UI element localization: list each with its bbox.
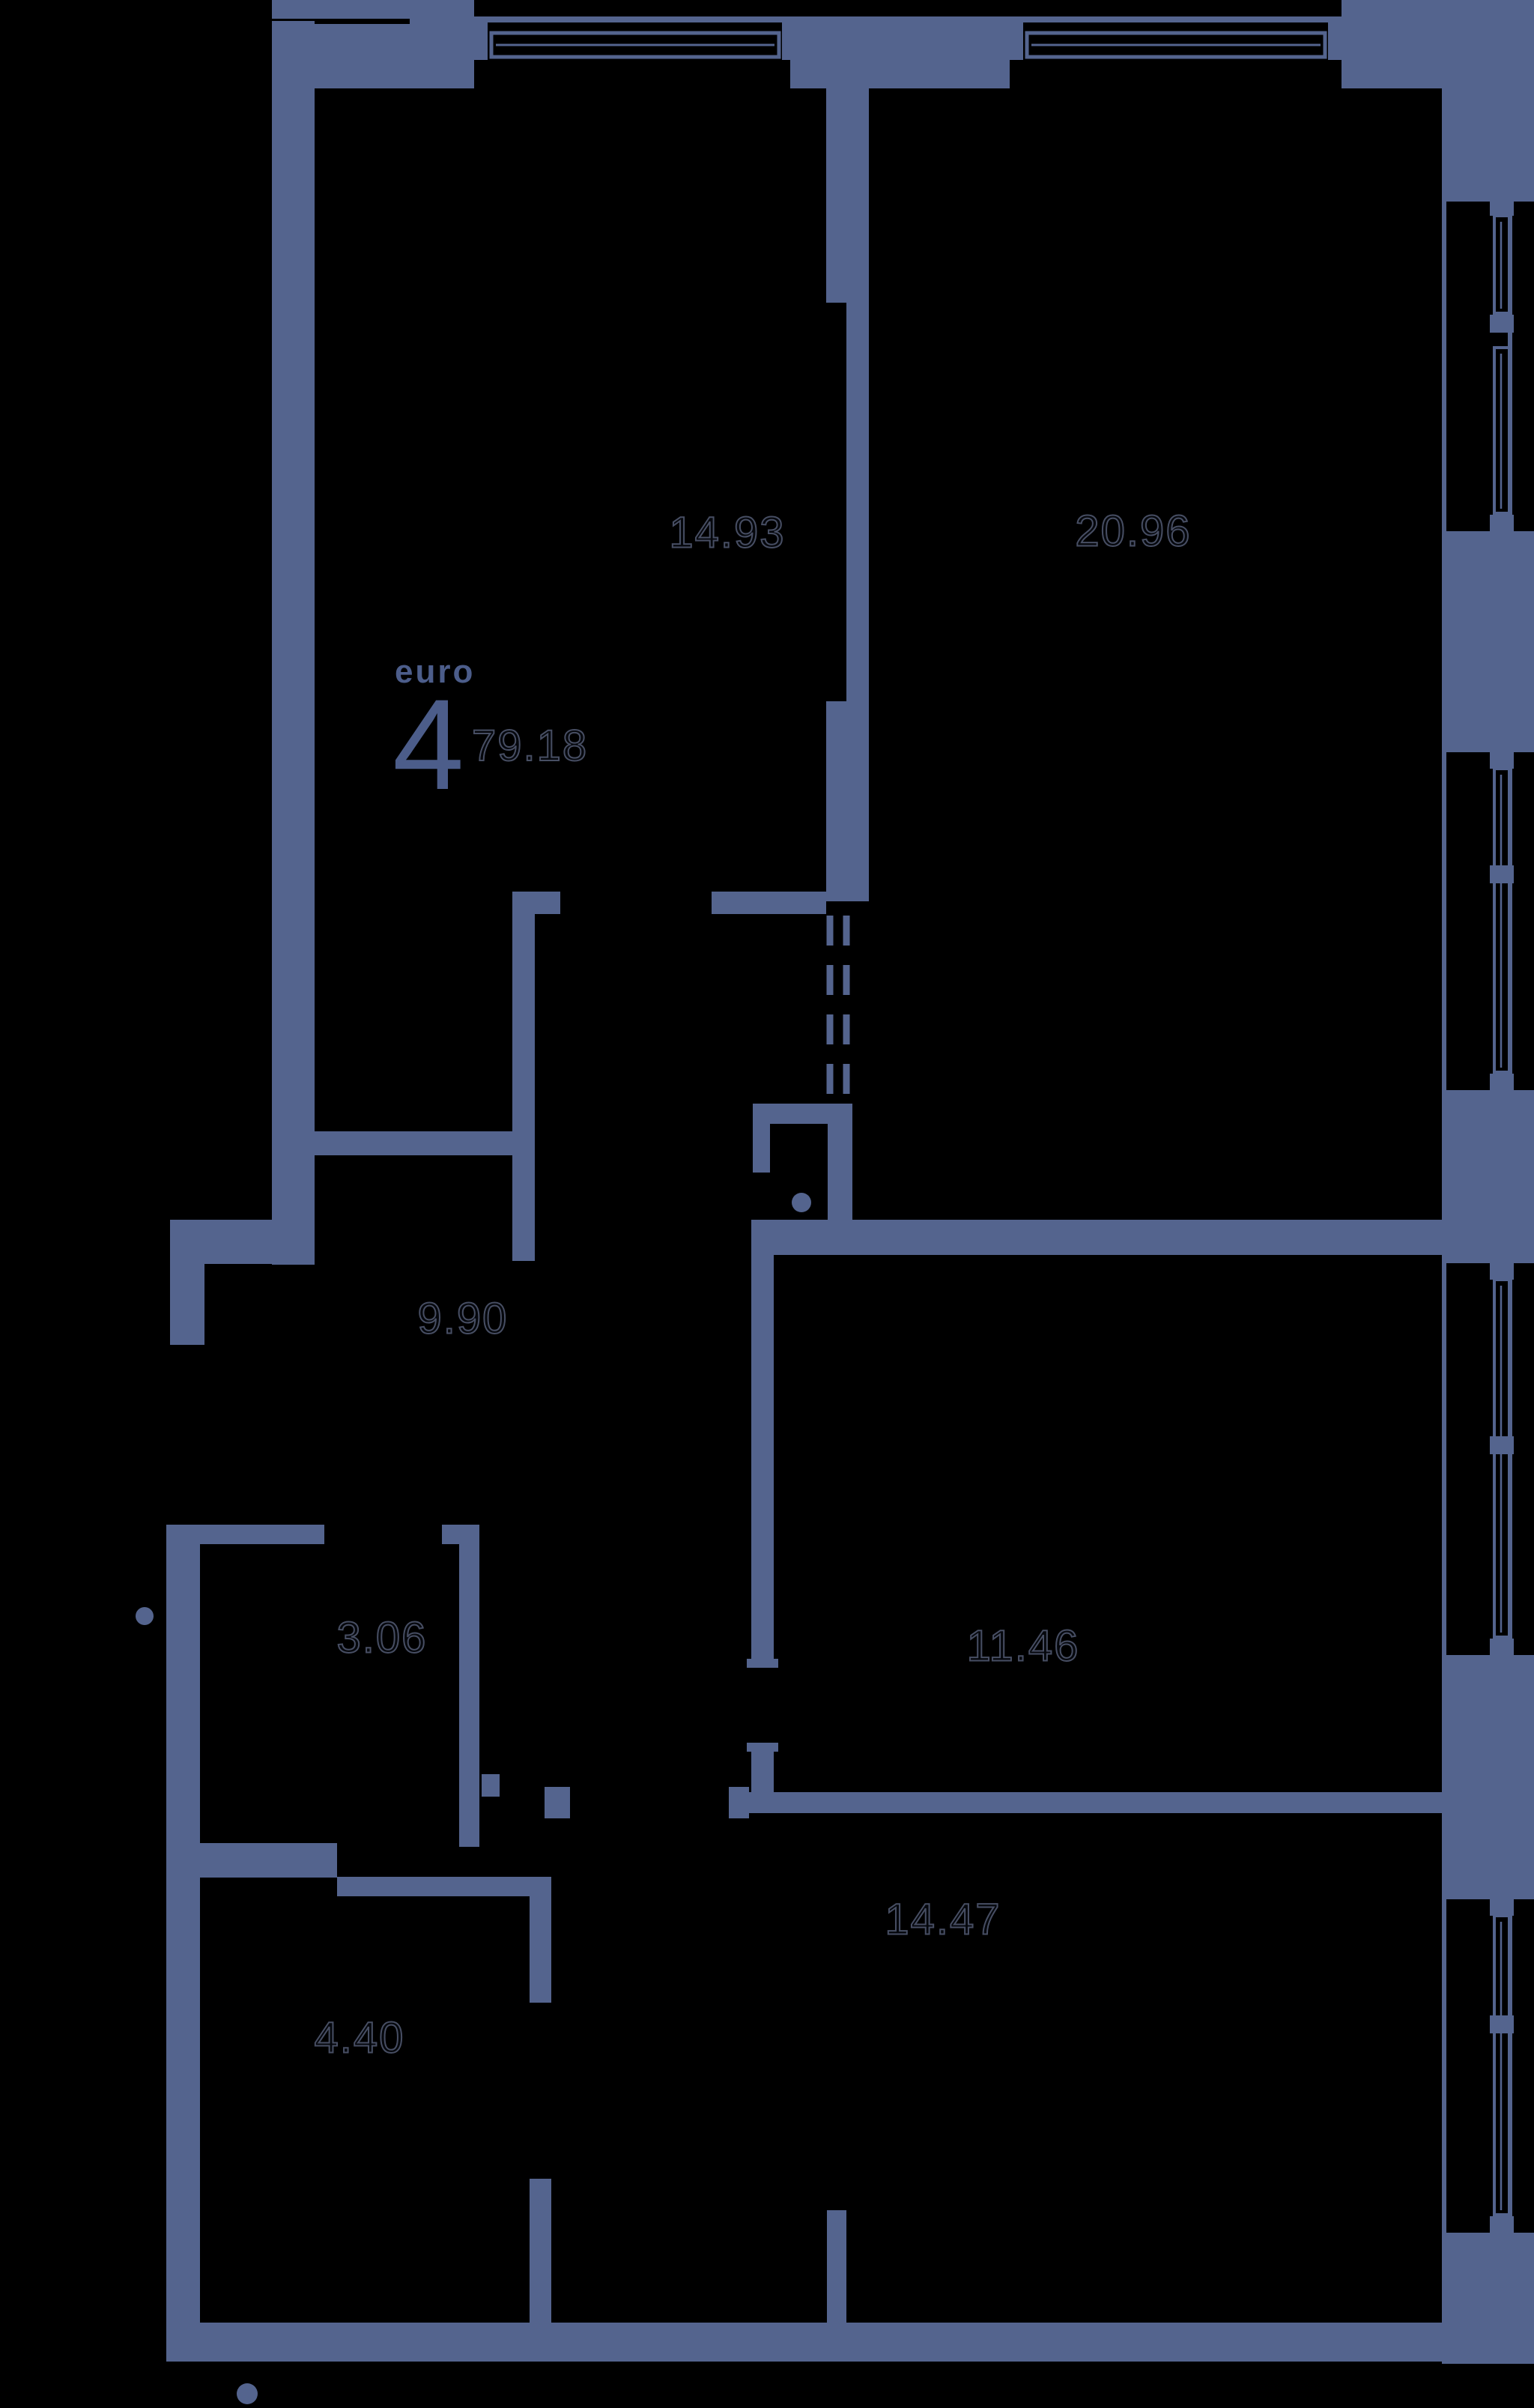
interior-walls (200, 16, 1443, 2324)
bottom-wall-dot (237, 2383, 258, 2404)
floor-plan: euro 4 79.18 14.93 20.96 9.90 3.06 11.46… (0, 0, 1534, 2408)
window-top-kitchen (474, 22, 795, 60)
room-label-bedroom-2: 14.47 (885, 1895, 1001, 1945)
unit-total-area: 79.18 (472, 721, 588, 771)
room-label-living-room: 20.96 (1075, 506, 1191, 557)
unit-rooms-count: 4 (392, 680, 464, 809)
room-label-bedroom-1: 11.46 (967, 1621, 1080, 1672)
shaft-riser-dot (792, 1193, 811, 1212)
room-label-bathroom-2: 4.40 (315, 2013, 405, 2063)
room-label-bathroom: 3.06 (337, 1613, 428, 1663)
sliding-door-dashes (830, 916, 846, 1103)
left-wall-dot (136, 1607, 154, 1625)
window-top-living (1010, 22, 1342, 60)
room-label-kitchen-living: 14.93 (669, 508, 785, 558)
floor-plan-drawing (0, 0, 1534, 2408)
room-label-corridor: 9.90 (418, 1294, 509, 1344)
